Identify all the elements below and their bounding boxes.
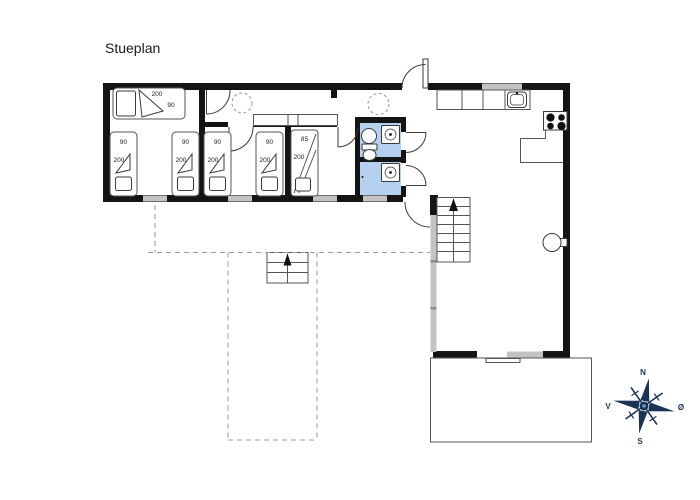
bed-pillow [296, 178, 311, 191]
compass-point-s [635, 410, 648, 434]
wall-segment [285, 127, 291, 195]
door-swing-bath2 [406, 166, 426, 186]
terrace-steps [267, 253, 308, 284]
floorplan-canvas: Stueplan [0, 0, 700, 500]
bed-single: 90 200 [110, 132, 137, 196]
plan-title: Stueplan [105, 40, 160, 56]
door-step [486, 359, 520, 363]
window [143, 196, 167, 202]
ceiling-lamp [232, 93, 252, 113]
wall-segment [433, 351, 477, 358]
door-swing-corridor [207, 90, 231, 114]
kitchen [437, 90, 567, 163]
wall-segment [355, 117, 406, 123]
toilet [362, 144, 377, 161]
stove-body [543, 234, 561, 252]
bed-pillow [262, 177, 278, 191]
shower [382, 164, 400, 182]
bed-width-label: 85 [301, 136, 309, 143]
bed-double: 200 90 [113, 88, 185, 119]
bed-width-label: 90 [266, 139, 274, 146]
door-arc [406, 133, 426, 153]
glass-mullion [431, 307, 437, 310]
shower-drain [389, 171, 392, 174]
wall-segment [205, 122, 228, 127]
compass-label-v: V [605, 402, 611, 411]
window [507, 352, 543, 358]
bed-pillow [116, 177, 132, 191]
compass-label-o: Ø [678, 403, 684, 412]
shower-drain [389, 133, 392, 136]
compass-rose: N S V Ø [605, 368, 684, 446]
door-arc [229, 127, 253, 151]
burner [546, 113, 554, 121]
stove [544, 112, 568, 131]
bed-width-label: 90 [182, 139, 190, 146]
wall-segment [103, 90, 110, 202]
terrace-south [431, 358, 592, 442]
bed-pillow [210, 177, 226, 191]
bed-single: 90 200 [172, 132, 199, 196]
door-leaf [423, 59, 428, 88]
floorplan-page: Stueplan [0, 0, 700, 500]
counter-edge [521, 130, 564, 163]
window [482, 84, 522, 90]
bed-single: 90 200 [256, 132, 283, 196]
bed-length-label: 200 [114, 157, 125, 164]
compass-point-e [648, 402, 675, 415]
bed-bunk: 85 200 [291, 130, 318, 196]
closet [254, 115, 338, 126]
bed-width-label: 90 [214, 139, 222, 146]
burner [558, 114, 565, 121]
bed-pillow [178, 177, 194, 191]
wall-segment [401, 150, 406, 163]
compass-point-w [613, 396, 640, 409]
door-arc [406, 166, 426, 186]
bed-length-label: 200 [294, 154, 305, 161]
bed-single: 90 200 [204, 132, 231, 196]
bed-length-label: 200 [152, 91, 163, 98]
wall-segment [331, 90, 337, 98]
glass-facade [431, 215, 437, 352]
sink-faucet [516, 92, 518, 94]
burner [557, 122, 565, 130]
compass-label-n: N [640, 368, 646, 377]
shower [382, 126, 400, 144]
closet-row [254, 115, 338, 126]
window [228, 196, 252, 202]
window [313, 196, 337, 202]
terrace-dashed [148, 205, 430, 440]
wall-segment [543, 351, 570, 358]
door-stop [362, 176, 364, 178]
door-swing-bedroom [229, 127, 253, 151]
staircase-main [437, 198, 470, 263]
bed-width-label: 90 [120, 139, 128, 146]
washbasin [362, 129, 377, 144]
wall-segment [401, 186, 406, 197]
window [363, 196, 387, 202]
burner [547, 123, 554, 130]
door-swing-bath1 [406, 133, 426, 153]
glass-mullion [431, 260, 437, 263]
compass-star [609, 373, 680, 439]
compass-point-n [640, 378, 653, 402]
kitchen-sink [508, 92, 527, 108]
door-arc [207, 90, 231, 114]
bed-length-label: 200 [260, 157, 271, 164]
ceiling-lamp [368, 94, 389, 115]
bed-pillow [117, 91, 136, 116]
bed-length-label: 200 [208, 157, 219, 164]
door-swing-hall [405, 202, 430, 227]
toilet-bowl [363, 150, 376, 161]
bed-width-label: 90 [167, 102, 175, 109]
door-arc [402, 65, 426, 89]
wall-segment [401, 117, 406, 132]
bed-length-label: 200 [176, 157, 187, 164]
door-swing-entrance [402, 59, 428, 88]
compass-label-s: S [637, 437, 643, 446]
